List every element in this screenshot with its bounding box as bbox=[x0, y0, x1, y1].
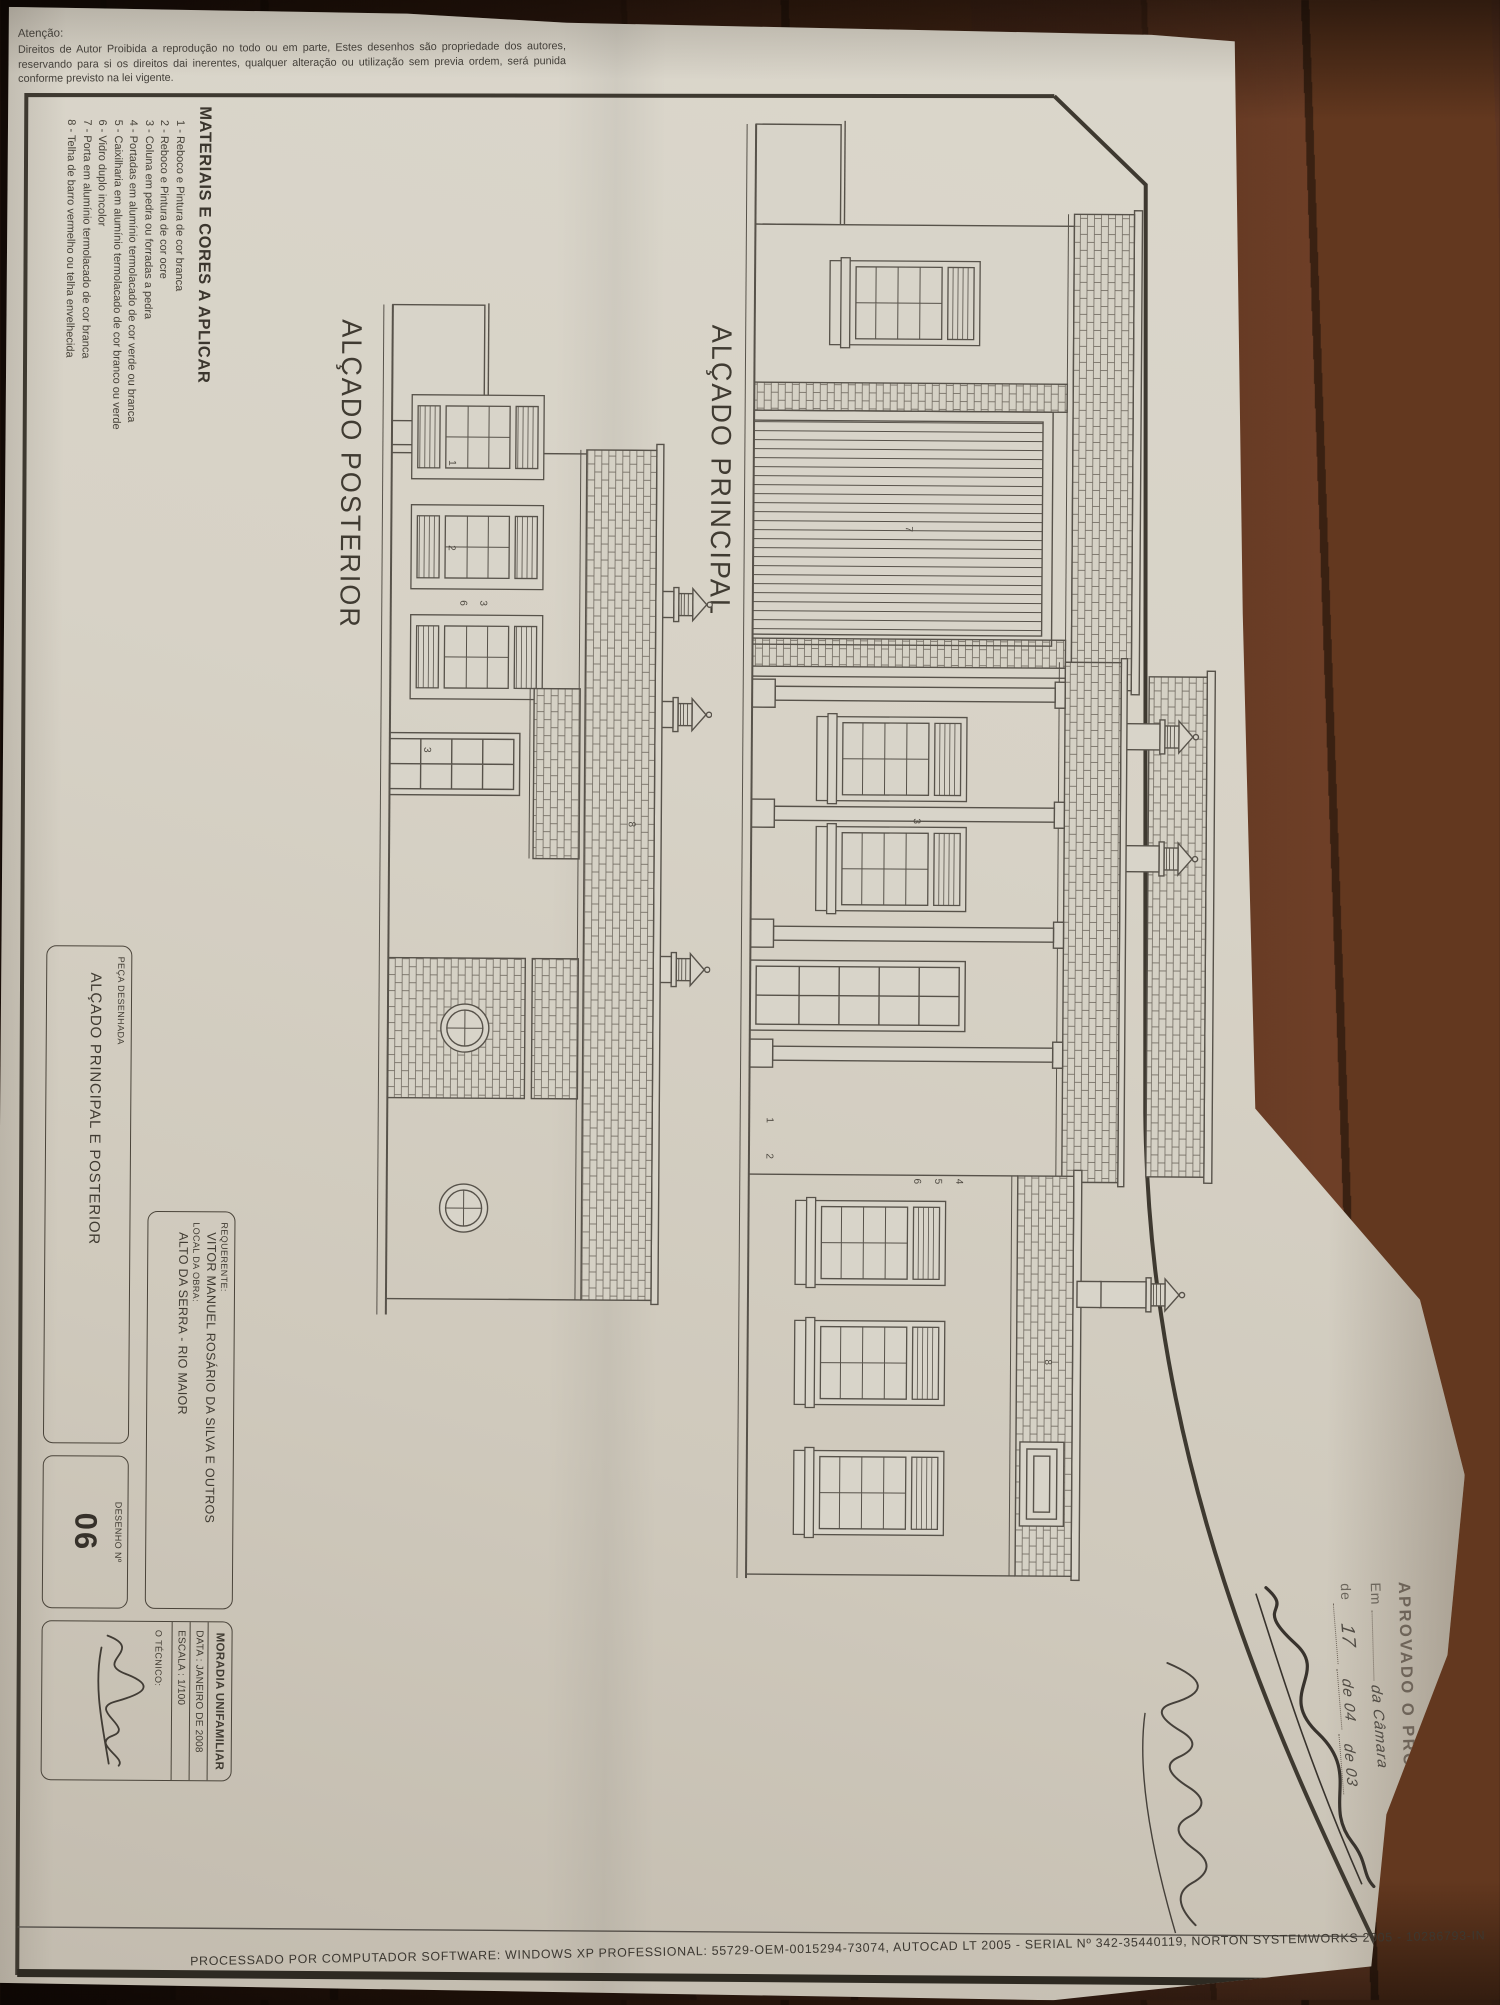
posterior-elevation-title: ALÇADO POSTERIOR bbox=[333, 319, 367, 629]
material-ref-marker-3: 3 bbox=[477, 600, 488, 606]
stamp-em-dots bbox=[1372, 1610, 1375, 1680]
copyright-notice: Atenção: Direitos de Autor Proibida a re… bbox=[18, 24, 566, 86]
project-scale: ESCALA : 1/100 bbox=[172, 1622, 191, 1780]
titleblock-info-box: MORADIA UNIFAMILIAR DATA : JANEIRO DE 20… bbox=[41, 1620, 233, 1781]
drawing-sheet: 87312456 ALÇADO PRINCIPAL bbox=[0, 5, 1487, 2005]
peca-desenhada-value: ALÇADO PRINCIPAL E POSTERIOR bbox=[84, 972, 104, 1432]
material-ref-marker-4: 4 bbox=[953, 1179, 964, 1185]
project-date: DATA : JANEIRO DE 2008 bbox=[190, 1622, 209, 1780]
copyright-notice-body: Direitos de Autor Proibida a reprodução … bbox=[18, 39, 566, 86]
legend-item: 1 - Reboco e Pintura de cor branca bbox=[168, 106, 187, 626]
tecnico-signature bbox=[89, 1627, 154, 1772]
material-ref-marker-2: 2 bbox=[446, 545, 457, 551]
material-ref-marker-1: 1 bbox=[446, 460, 457, 466]
materials-legend-title: MATERIAIS E CORES A APLICAR bbox=[192, 106, 215, 626]
principal-elevation-drawing: 87312456 bbox=[721, 120, 1221, 1583]
material-ref-marker-7: 7 bbox=[903, 526, 914, 532]
posterior-elevation-drawing: 123638 bbox=[363, 302, 715, 1319]
stamp-date-year: de 03 bbox=[1338, 1734, 1361, 1797]
material-ref-marker-3: 3 bbox=[911, 818, 922, 824]
materials-legend: MATERIAIS E CORES A APLICAR 1 - Reboco e… bbox=[60, 105, 215, 626]
copyright-notice-title: Atenção: bbox=[18, 24, 566, 40]
local-obra-label: LOCAL DA OBRA: bbox=[189, 1222, 202, 1598]
approval-stamp: APROVADO O PROJECTO Em da Câmara de 17 d… bbox=[1334, 1581, 1421, 1883]
stamp-date-month: de 04 bbox=[1337, 1669, 1360, 1732]
stamp-em-prefix: Em bbox=[1368, 1582, 1385, 1605]
material-ref-marker-1: 1 bbox=[764, 1117, 775, 1123]
project-type: MORADIA UNIFAMILIAR bbox=[208, 1622, 232, 1780]
desenho-num-value: 06 bbox=[67, 1460, 104, 1603]
stamp-line-em: Em da Câmara bbox=[1367, 1582, 1392, 1882]
material-ref-marker-5: 5 bbox=[932, 1179, 943, 1185]
material-ref-marker-6: 6 bbox=[911, 1178, 922, 1184]
peca-desenhada-label: PEÇA DESENHADA bbox=[113, 957, 126, 1433]
stamp-date-day: 17 bbox=[1333, 1604, 1361, 1668]
material-ref-marker-8: 8 bbox=[1042, 1359, 1053, 1365]
tecnico-label: O TÉCNICO: bbox=[153, 1630, 163, 1686]
material-ref-marker-8: 8 bbox=[626, 821, 637, 827]
photo-of-architectural-drawing: { "margin_notes": { "attention_title": "… bbox=[0, 0, 1500, 2000]
desenho-num-label: DESENHO Nº bbox=[113, 1461, 124, 1604]
requerente-value: VITOR MANUEL ROSÁRIO DA SILVA E OUTROS bbox=[202, 1232, 219, 1598]
stamp-em-handwriting: da Câmara bbox=[1367, 1684, 1391, 1770]
titleblock-desenho-box: DESENHO Nº 06 bbox=[42, 1455, 129, 1609]
stamp-date-prefix: de bbox=[1338, 1583, 1354, 1601]
material-ref-marker-6: 6 bbox=[457, 600, 468, 606]
titleblock-peca-box: PEÇA DESENHADA ALÇADO PRINCIPAL E POSTER… bbox=[43, 945, 132, 1444]
material-ref-marker-2: 2 bbox=[763, 1153, 774, 1159]
sheet-rotation-wrapper: 87312456 ALÇADO PRINCIPAL bbox=[0, 5, 1487, 2005]
requerente-label: REQUERENTE: bbox=[217, 1222, 230, 1598]
material-ref-marker-3: 3 bbox=[421, 747, 432, 753]
titleblock-requerente-box: REQUERENTE: VITOR MANUEL ROSÁRIO DA SILV… bbox=[145, 1211, 236, 1610]
materials-legend-list: 1 - Reboco e Pintura de cor branca2 - Re… bbox=[60, 105, 188, 626]
local-obra-value: ALTO DA SERRA - RIO MAIOR bbox=[174, 1232, 191, 1598]
